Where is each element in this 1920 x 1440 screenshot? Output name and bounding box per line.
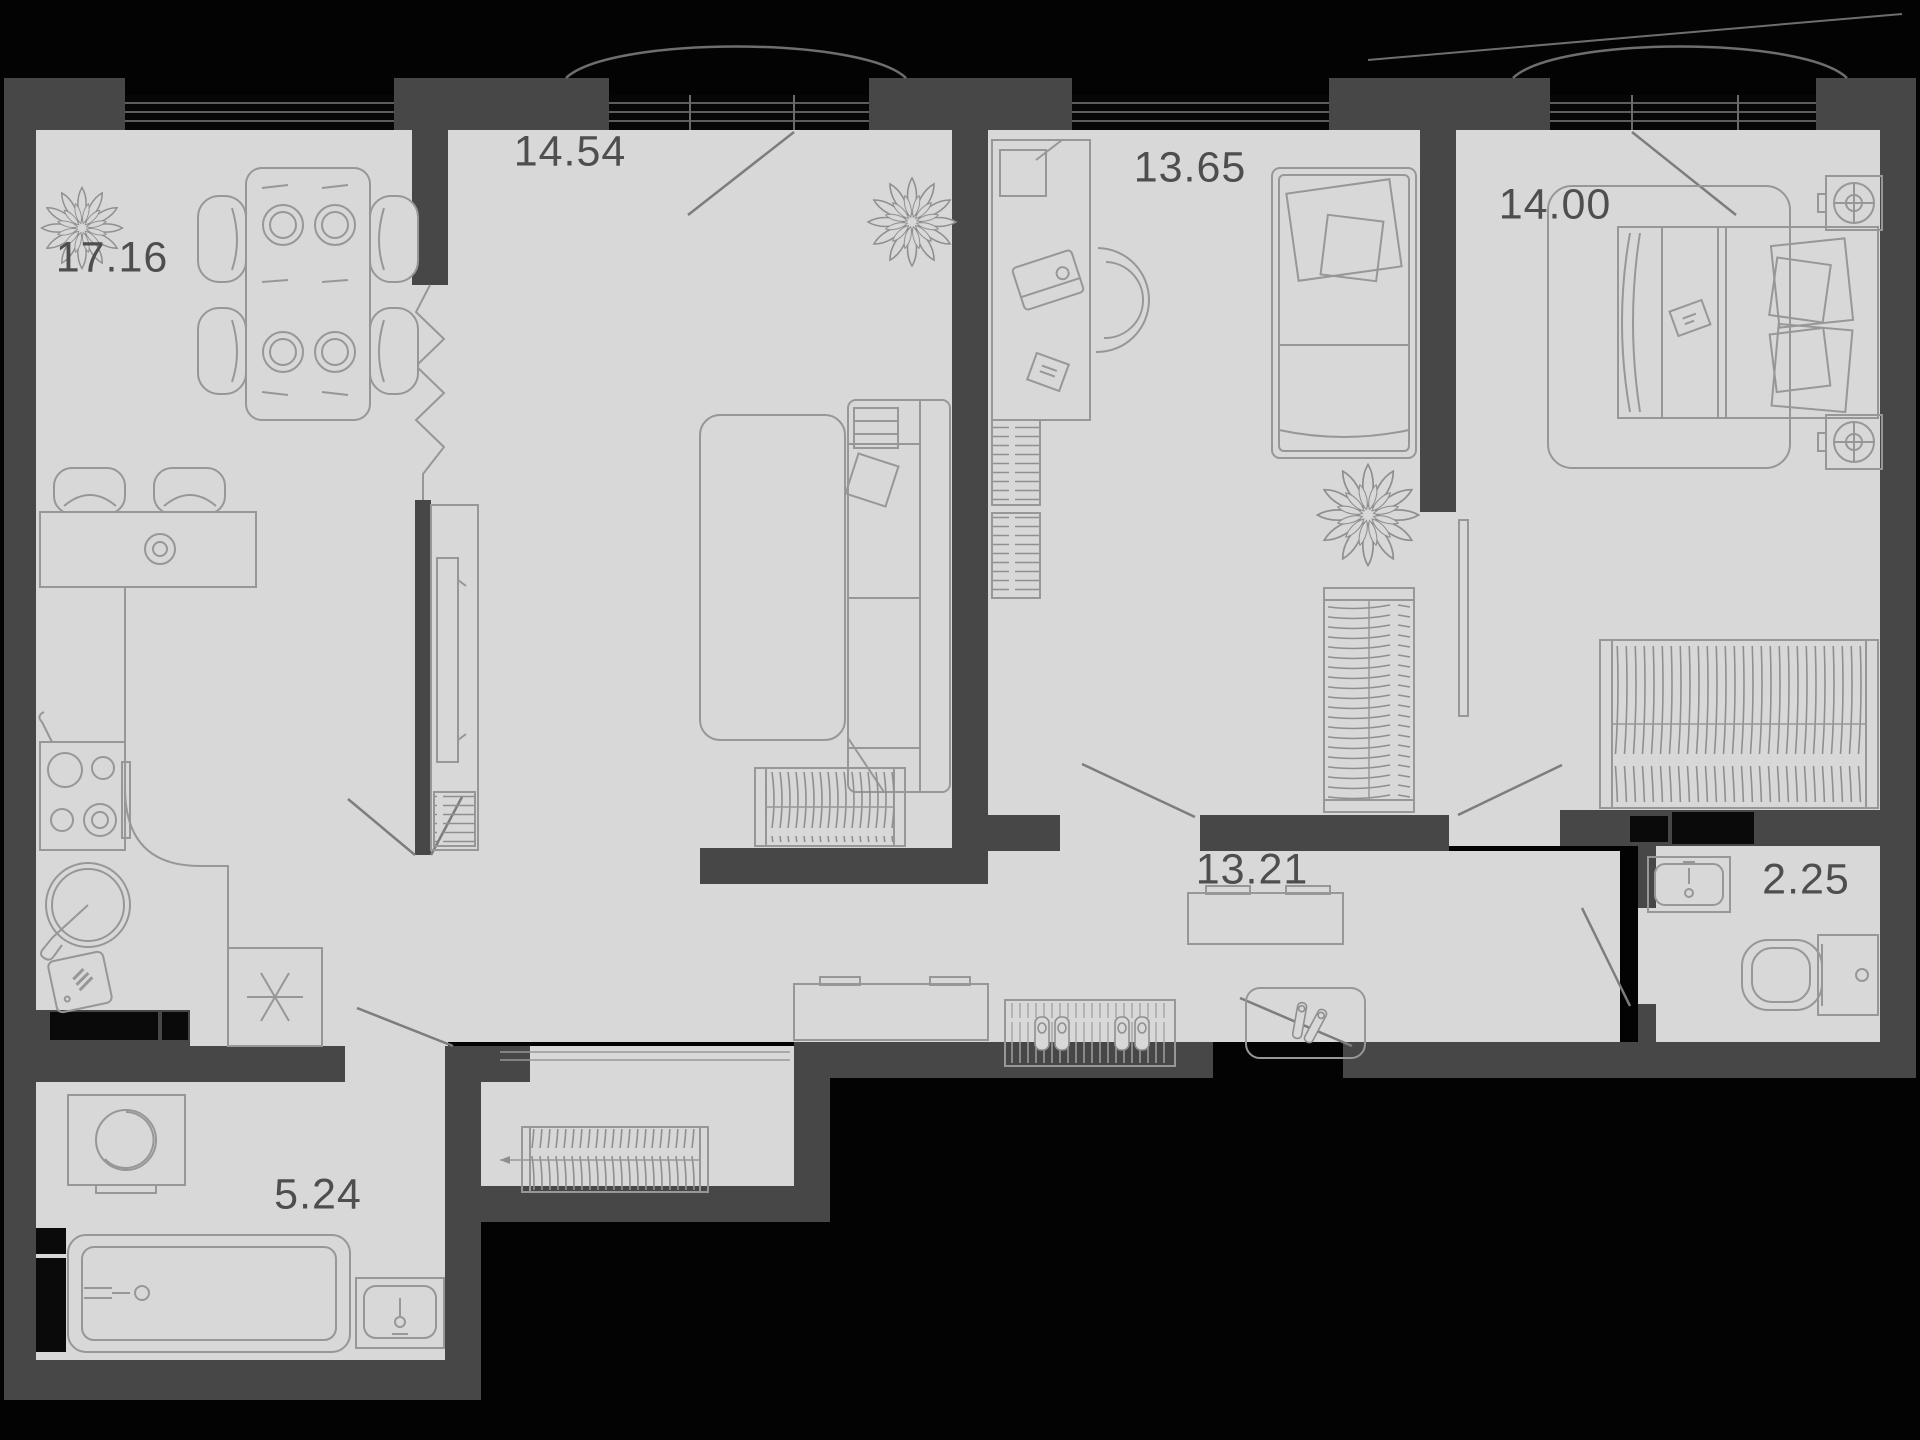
washing-machine-icon — [68, 1095, 185, 1193]
kitchen-sink-icon — [41, 863, 130, 960]
chair-icon — [198, 196, 418, 394]
open-door-leaf — [1459, 520, 1468, 716]
area-label-wc: 2.25 — [1762, 856, 1850, 905]
fridge-icon — [228, 948, 322, 1046]
area-label-bathroom: 5.24 — [274, 1171, 362, 1220]
plant-icon — [868, 178, 956, 266]
desk-chair-icon — [1096, 248, 1149, 352]
area-label-bedroom-small: 13.65 — [1134, 144, 1247, 193]
tv-console-icon — [431, 505, 478, 850]
window-glazing — [125, 95, 1816, 130]
rug-icon — [700, 415, 845, 740]
area-label-kitchen: 17.16 — [56, 234, 169, 283]
cutting-board-icon — [47, 951, 113, 1014]
single-bed-icon — [1272, 168, 1416, 458]
zigzag-opening-icon — [416, 285, 444, 500]
balcony-arc-icon — [566, 14, 1902, 78]
area-label-bedroom-master: 14.00 — [1499, 181, 1612, 230]
sofa-icon — [846, 400, 950, 792]
entry-mat-icon — [1246, 988, 1365, 1058]
area-label-living: 14.54 — [514, 128, 627, 177]
bookshelf-icon — [992, 420, 1040, 598]
wardrobe-hangers-icon — [1600, 640, 1878, 808]
bar-counter-icon — [40, 512, 256, 948]
shoe-mat-icon — [1005, 1000, 1175, 1066]
wardrobe-hangers-icon — [1324, 588, 1414, 812]
wardrobe-hangers-icon — [755, 768, 905, 846]
toilet-icon — [1742, 935, 1878, 1015]
door-swing-icon — [348, 132, 1736, 1046]
plant-icon — [1317, 464, 1418, 565]
desk-icon — [992, 140, 1090, 420]
dining-table-icon — [246, 168, 370, 420]
floor-plan: 17.16 14.54 13.65 14.00 13.21 2.25 5.24 — [0, 0, 1920, 1440]
radiator-icon — [500, 1052, 790, 1192]
plan-lineart — [0, 0, 1920, 1440]
sink-icon — [356, 1278, 444, 1348]
area-label-hall: 13.21 — [1196, 846, 1309, 895]
sink-icon — [1648, 857, 1730, 912]
bar-stool-icon — [54, 468, 225, 514]
heels-icon — [1287, 1001, 1328, 1046]
stove-icon — [39, 712, 130, 850]
double-bed-icon — [1618, 227, 1878, 418]
bathtub-icon — [68, 1235, 350, 1352]
